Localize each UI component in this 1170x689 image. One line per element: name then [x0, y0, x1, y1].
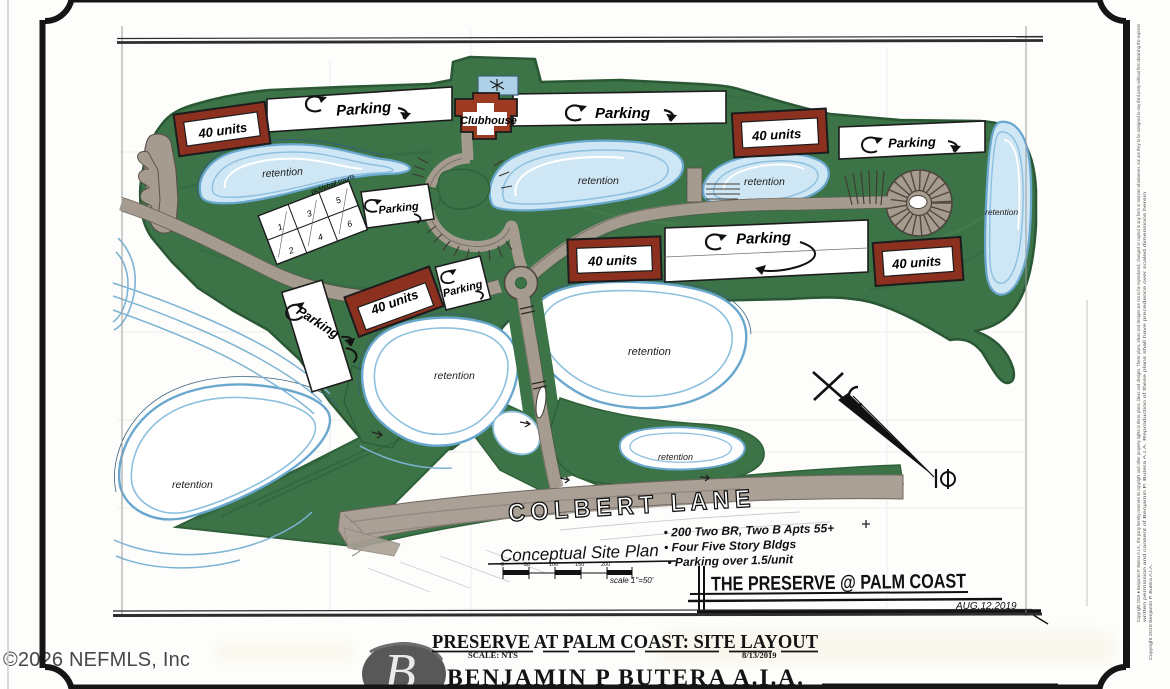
svg-text:AUG.12.2019: AUG.12.2019 — [955, 601, 1017, 612]
svg-text:Copyright 2019 ● Benjamin P. B: Copyright 2019 ● Benjamin P. Butera A.I.… — [1136, 24, 1142, 622]
svg-text:written permission and consent: written permission and consent of Benjam… — [1142, 192, 1148, 622]
svg-text:Copyright 2019 Benjamin P. But: Copyright 2019 Benjamin P. Butera A.I.A. — [1148, 564, 1154, 660]
svg-text:100: 100 — [549, 562, 558, 568]
svg-text:retention: retention — [744, 176, 785, 188]
svg-text:retention: retention — [985, 207, 1018, 217]
svg-text:scale 1"=50': scale 1"=50' — [610, 576, 654, 585]
svg-text:retention: retention — [628, 346, 671, 358]
svg-text:200: 200 — [601, 562, 610, 568]
svg-text:8/13/2019: 8/13/2019 — [742, 650, 776, 660]
svg-text:retention: retention — [658, 452, 693, 462]
svg-text:40 units: 40 units — [587, 252, 638, 269]
svg-text:Parking: Parking — [595, 105, 650, 122]
svg-text:retention: retention — [434, 370, 475, 382]
svg-text:B: B — [384, 644, 416, 689]
svg-text:SCALE: NTS: SCALE: NTS — [468, 650, 518, 660]
svg-text:©2026 NEFMLS, Inc: ©2026 NEFMLS, Inc — [3, 649, 190, 671]
svg-text:Clubhouse: Clubhouse — [460, 115, 517, 127]
svg-text:40 units: 40 units — [751, 126, 802, 144]
svg-text:Parking: Parking — [736, 229, 792, 248]
svg-text:Parking: Parking — [888, 134, 936, 151]
svg-text:retention: retention — [578, 175, 619, 187]
svg-text:150: 150 — [575, 562, 584, 568]
svg-text:0: 0 — [501, 562, 504, 568]
svg-text:retention: retention — [172, 479, 213, 491]
svg-text:50: 50 — [524, 562, 530, 568]
